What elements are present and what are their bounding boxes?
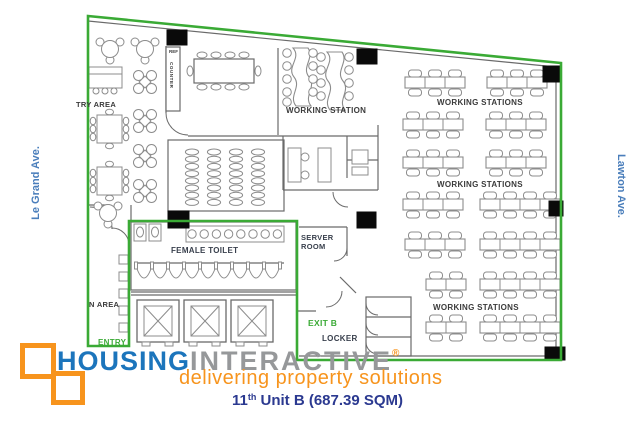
tagline: delivering property solutions (179, 367, 443, 390)
logo-square-icon-small (51, 371, 85, 405)
street-label-left: Le Grand Ave. (30, 146, 42, 220)
street-label-right: Lawton Ave. (615, 154, 627, 218)
label-working-station: WORKING STATION (286, 106, 366, 115)
label-counter: COUNTER (169, 62, 174, 88)
floor-plan-page: Le Grand Ave. Lawton Ave. TRY AREA REF C… (0, 0, 635, 423)
unit-title-number: 11 (232, 392, 248, 409)
label-female-toilet: FEMALE TOILET (171, 246, 238, 255)
label-working-stations-bottom: WORKING STATIONS (433, 303, 519, 312)
registered-mark-icon: ® (392, 348, 400, 359)
unit-title-rest: Unit B (687.39 SQM) (256, 392, 403, 409)
label-server-room-line2: ROOM (301, 243, 334, 252)
label-ref: REF (167, 49, 180, 54)
label-n-area: N AREA (89, 300, 119, 309)
logo-housing: HOUSING (57, 346, 190, 376)
label-working-stations-mid: WORKING STATIONS (437, 180, 523, 189)
label-exit-b: EXIT B (308, 318, 337, 328)
label-pantry-area: TRY AREA (76, 100, 116, 109)
unit-title: 11th Unit B (687.39 SQM) (150, 392, 485, 409)
label-working-stations-top: WORKING STATIONS (437, 98, 523, 107)
label-server-room: SERVER ROOM (301, 234, 334, 251)
